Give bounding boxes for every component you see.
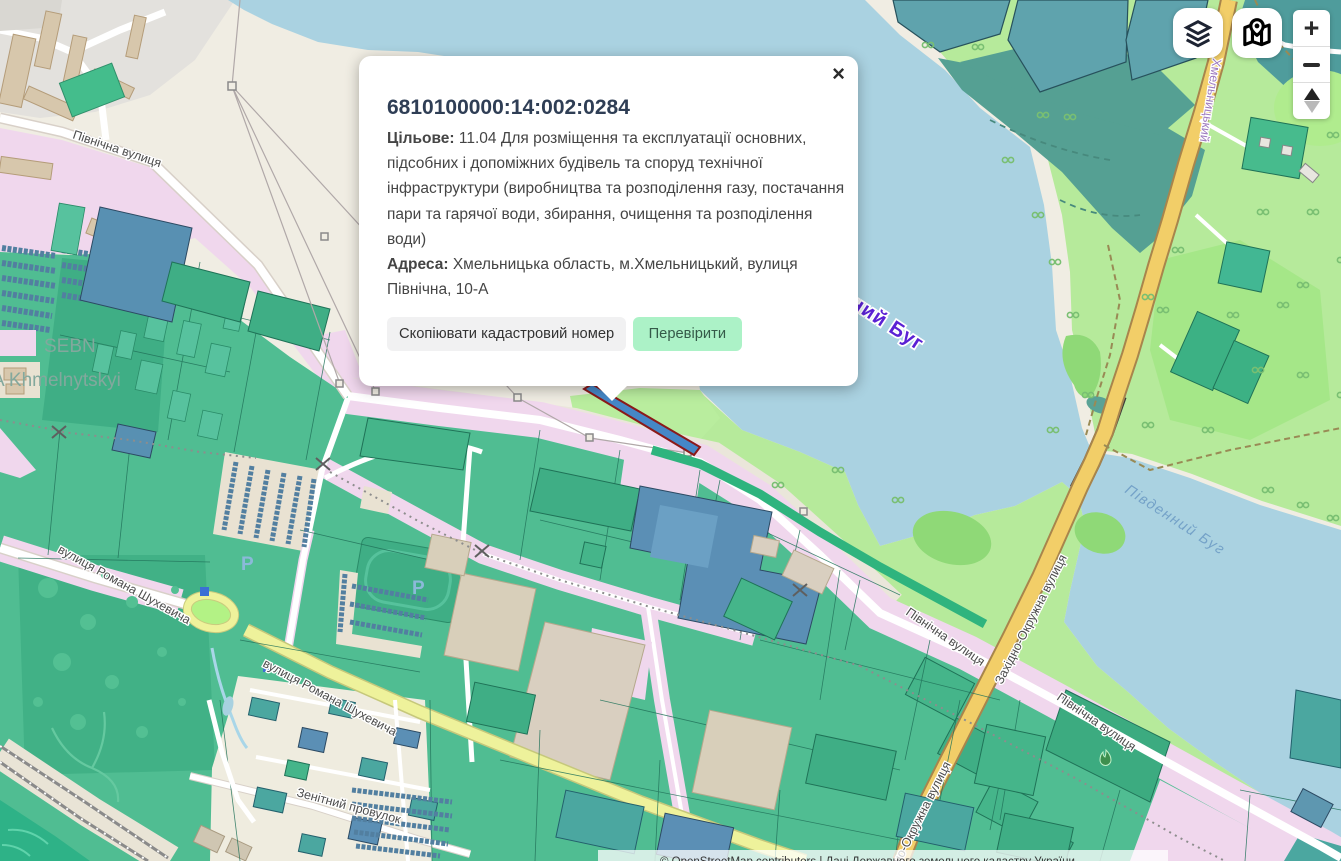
svg-text:A Khmelnytskyi: A Khmelnytskyi <box>0 370 121 391</box>
svg-text:P: P <box>412 578 425 599</box>
svg-text:© OpenStreetMap contributors |: © OpenStreetMap contributors | Дані Держ… <box>660 856 1075 861</box>
svg-text:P: P <box>241 554 254 575</box>
svg-text:SEBN: SEBN <box>44 336 96 357</box>
